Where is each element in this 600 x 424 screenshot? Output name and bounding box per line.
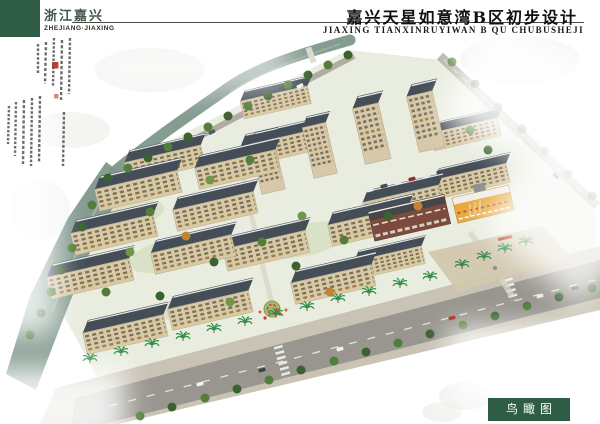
- brand-color-block: [0, 0, 40, 37]
- calligraphy-inscription: [6, 36, 86, 176]
- project-title-en: JIAXING TIANXINRUYIWAN B QU CHUBUSHEJI: [323, 25, 584, 35]
- red-seal-stamp: [54, 94, 59, 99]
- drawing-caption-birdseye: 鸟瞰图: [488, 398, 570, 421]
- brand-name-en: ZHEJIANG·JIAXING: [44, 25, 115, 32]
- red-seal-stamp: [52, 62, 59, 69]
- design-board-page: 浙江嘉兴 ZHEJIANG·JIAXING 嘉兴天星如意湾B区初步设计 JIAX…: [0, 0, 600, 424]
- aerial-rendering: [0, 0, 600, 424]
